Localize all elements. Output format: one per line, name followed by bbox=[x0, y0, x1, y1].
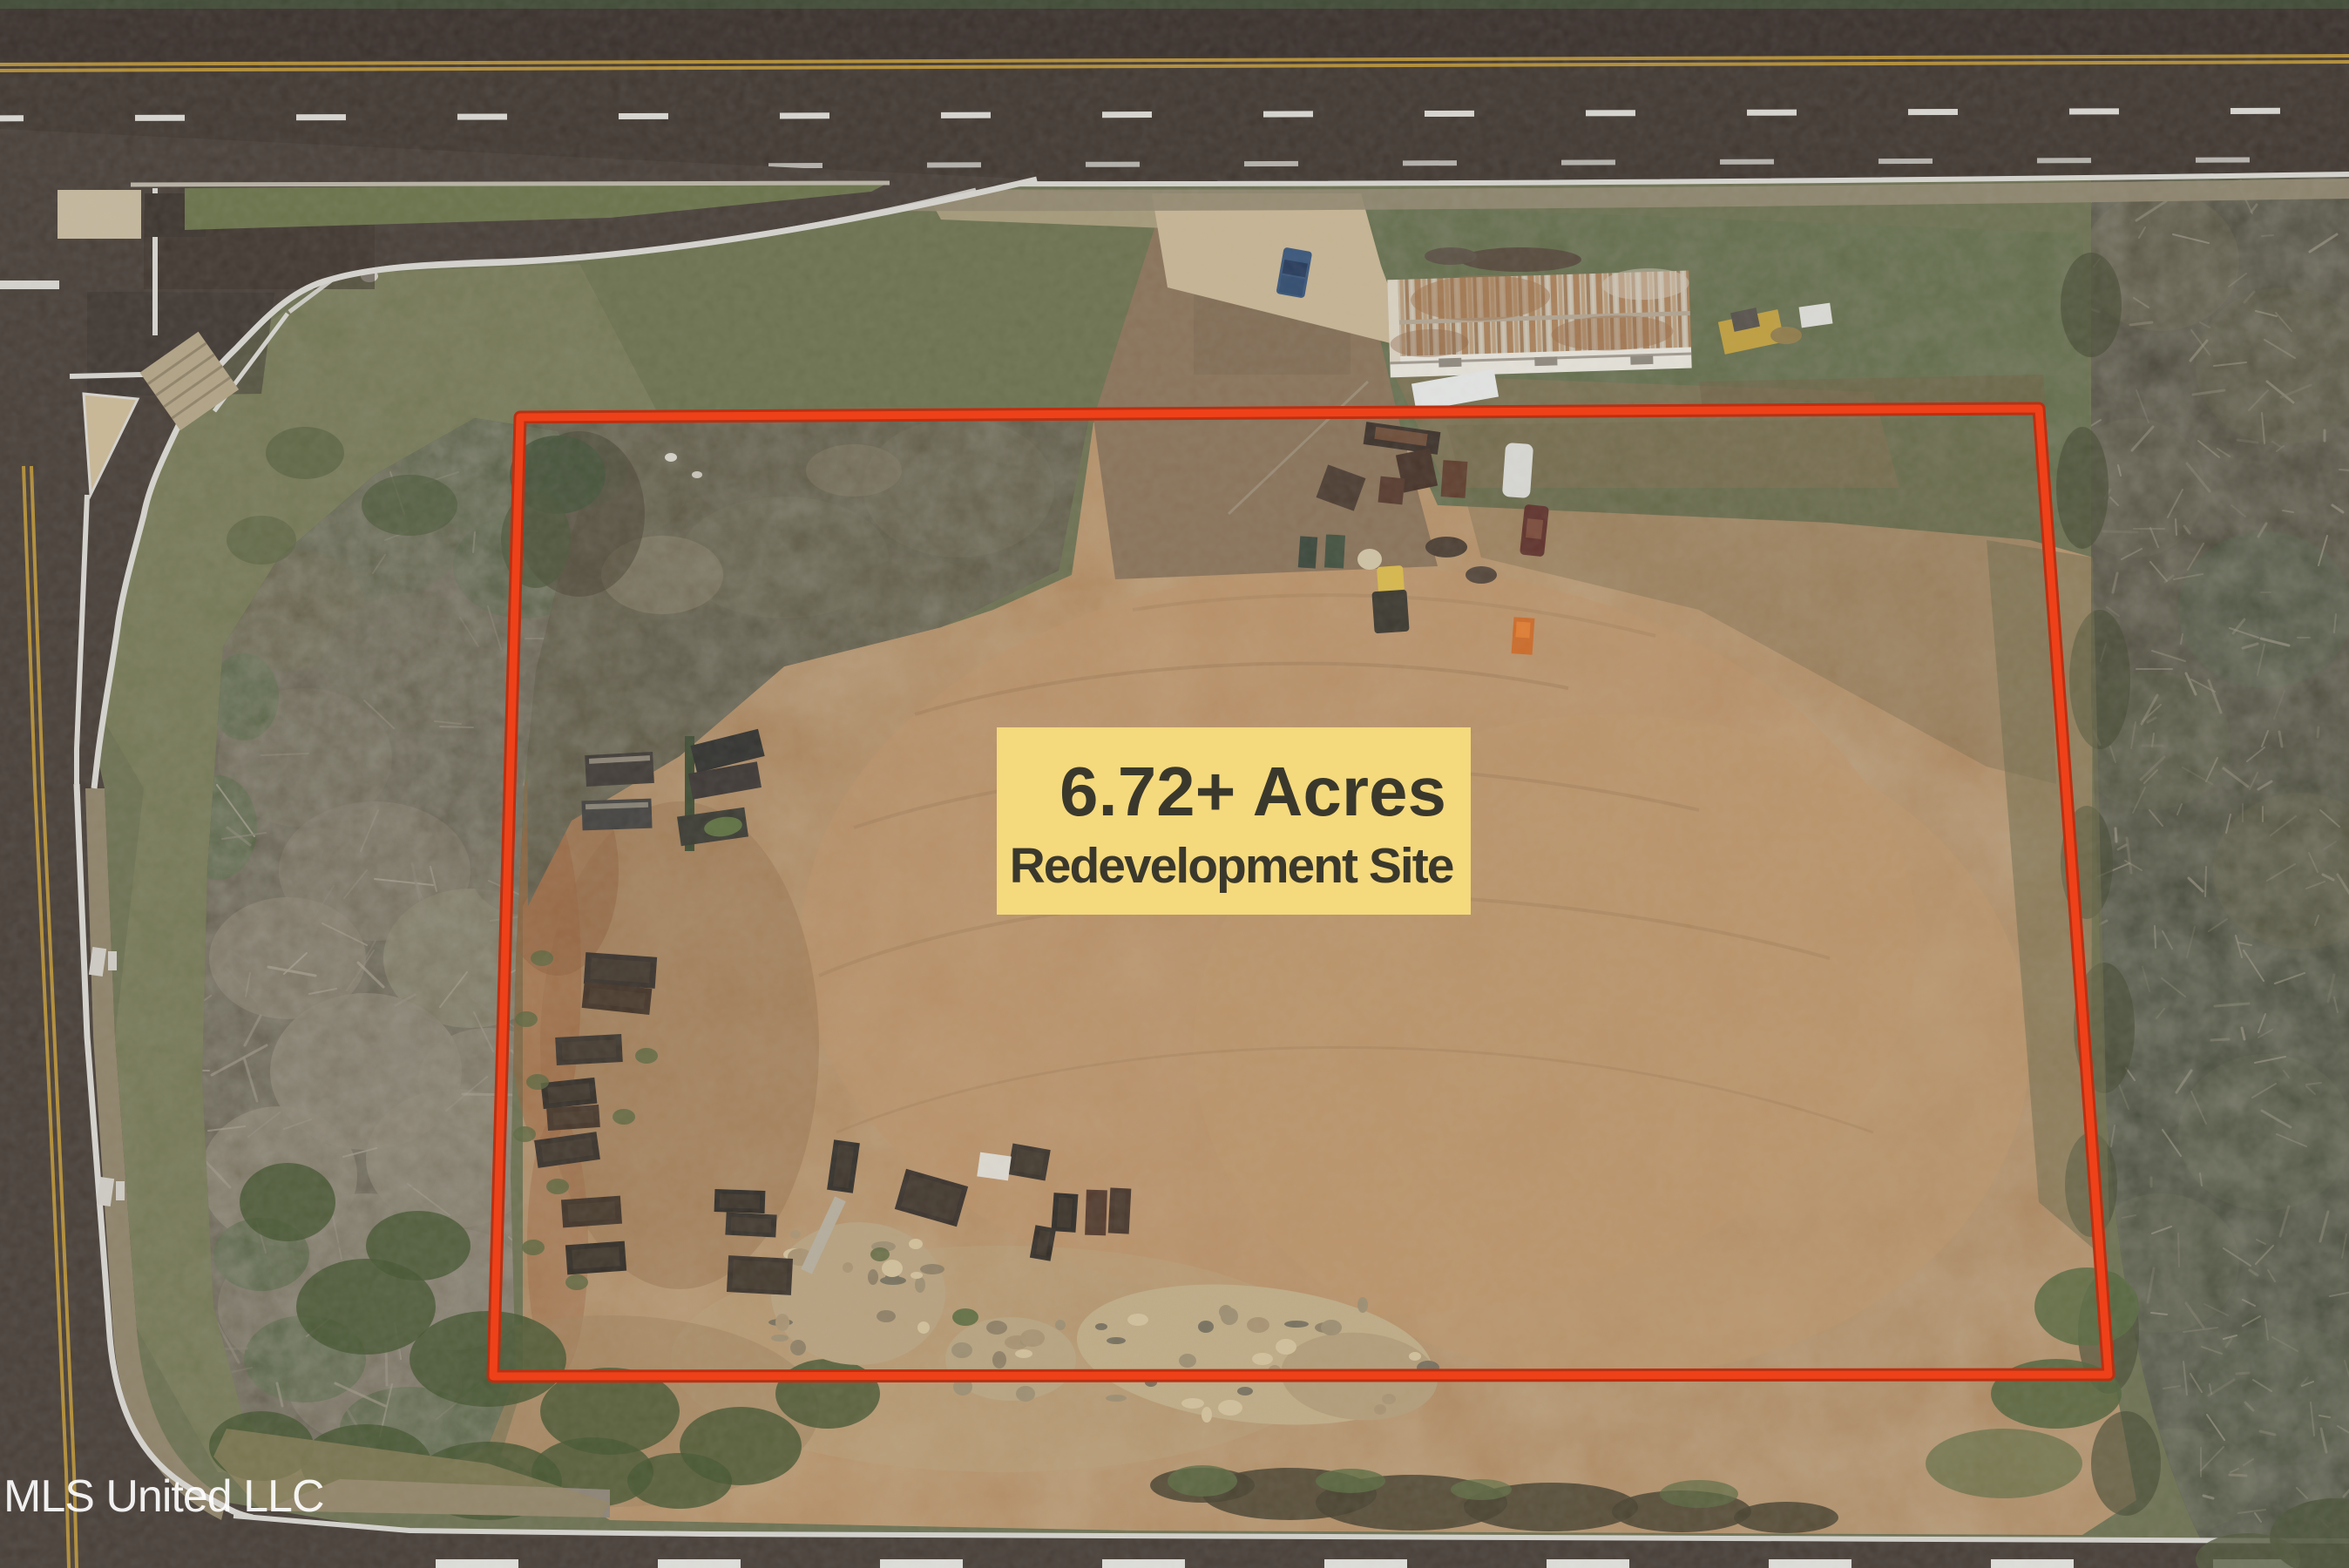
svg-text:Redevelopment Site: Redevelopment Site bbox=[1010, 838, 1453, 894]
svg-text:MLS United LLC: MLS United LLC bbox=[3, 1471, 324, 1522]
svg-text:6.72+ Acres: 6.72+ Acres bbox=[1059, 753, 1446, 830]
